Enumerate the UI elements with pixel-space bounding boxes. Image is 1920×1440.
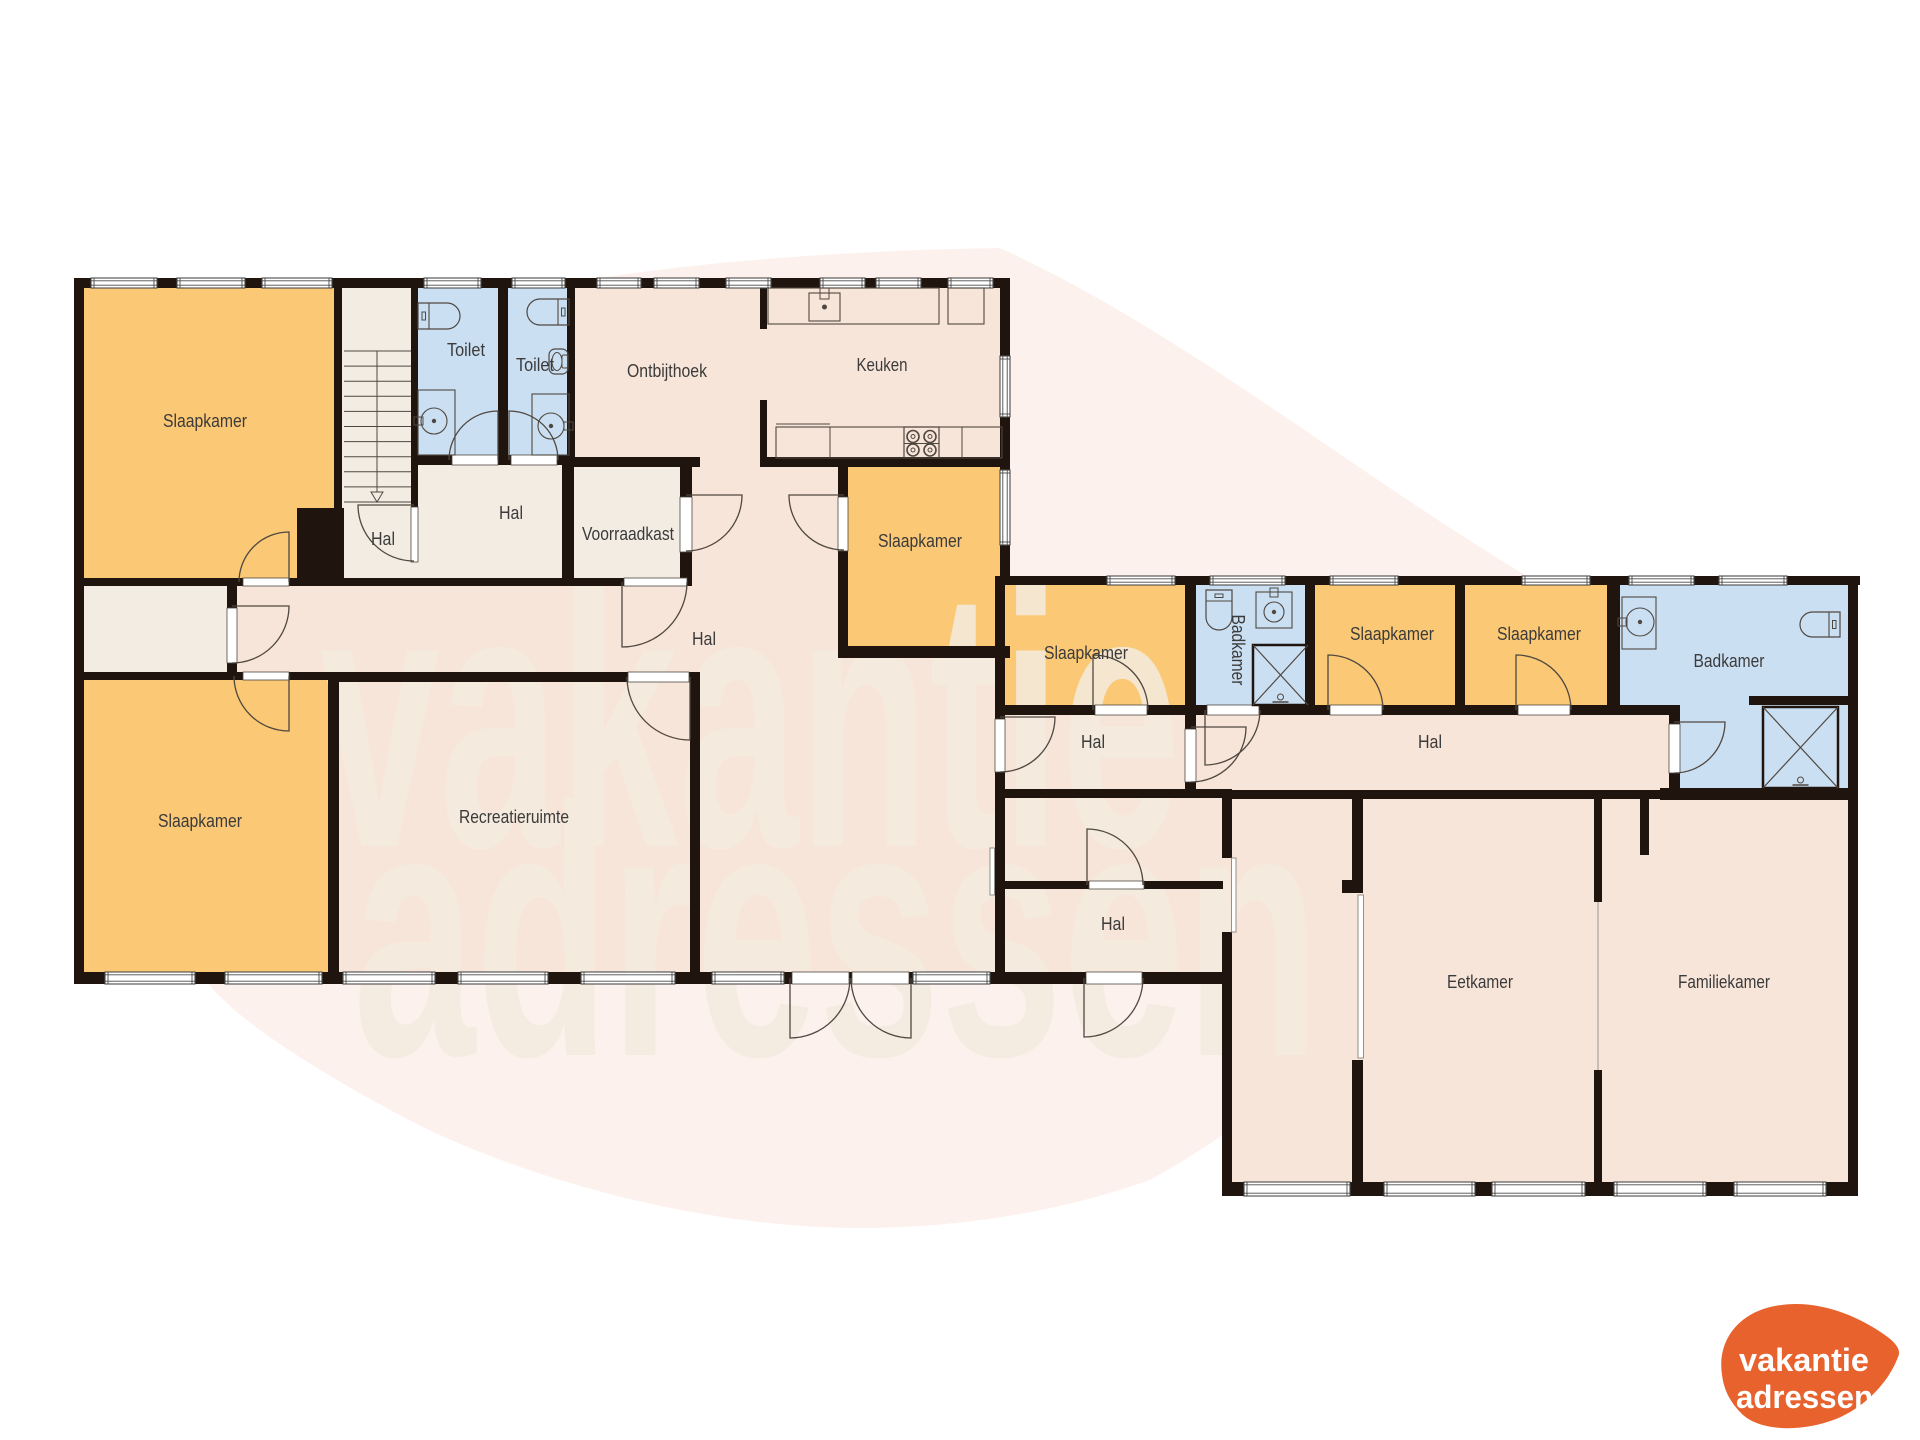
svg-text:Eetkamer: Eetkamer [1447,971,1513,992]
svg-text:Ontbijthoek: Ontbijthoek [627,360,708,381]
svg-text:Slaapkamer: Slaapkamer [163,410,247,431]
svg-text:Toilet: Toilet [447,339,485,360]
svg-text:vakantie: vakantie [1739,1342,1869,1378]
svg-text:Toilet: Toilet [516,354,554,375]
svg-text:Slaapkamer: Slaapkamer [1350,623,1434,644]
svg-text:Hal: Hal [371,528,395,549]
svg-text:Slaapkamer: Slaapkamer [1044,642,1128,663]
svg-text:adressen: adressen [1736,1379,1873,1415]
svg-text:Voorraadkast: Voorraadkast [582,523,674,544]
svg-text:Badkamer: Badkamer [1228,615,1249,686]
svg-text:Slaapkamer: Slaapkamer [878,530,962,551]
svg-text:Recreatieruimte: Recreatieruimte [459,806,569,827]
svg-text:Hal: Hal [1418,731,1442,752]
svg-text:Slaapkamer: Slaapkamer [1497,623,1581,644]
svg-text:Keuken: Keuken [857,354,908,375]
svg-text:Slaapkamer: Slaapkamer [158,810,242,831]
svg-text:Hal: Hal [1101,913,1125,934]
svg-text:Familiekamer: Familiekamer [1678,971,1770,992]
svg-text:Hal: Hal [1081,731,1105,752]
svg-text:Badkamer: Badkamer [1694,650,1765,671]
svg-text:Hal: Hal [499,502,523,523]
svg-text:Hal: Hal [692,628,716,649]
